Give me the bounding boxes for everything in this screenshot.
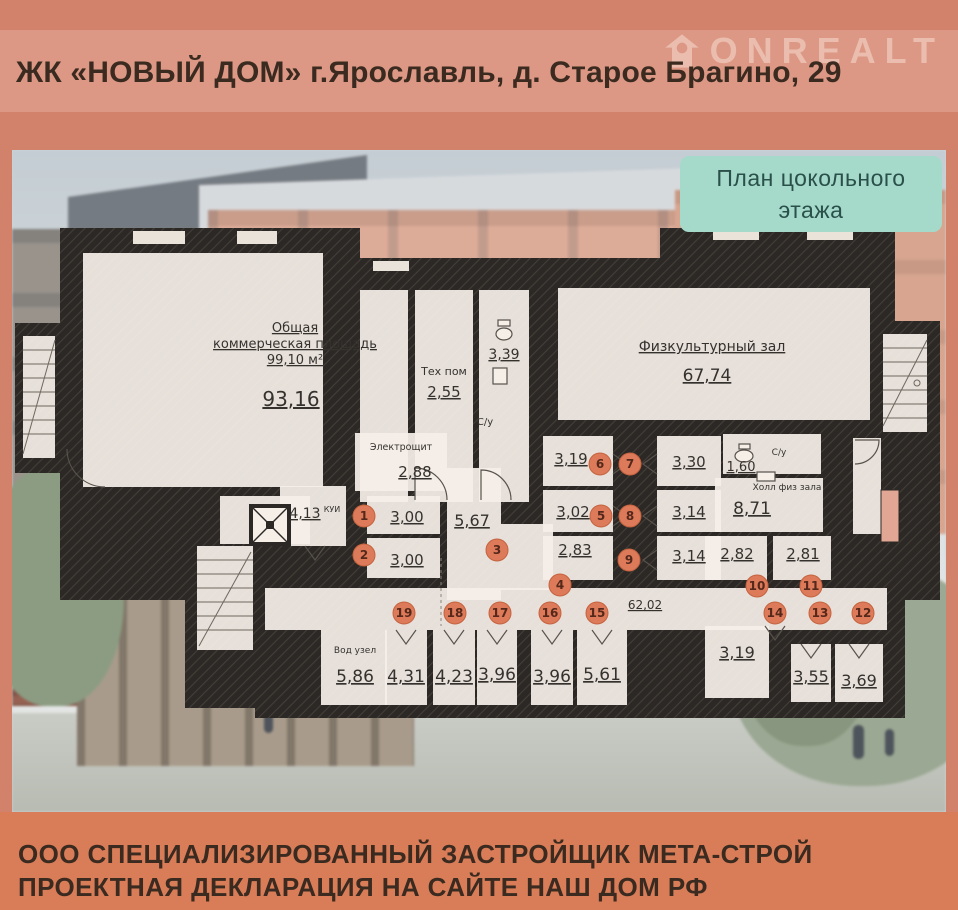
room-11-area: 2,81	[786, 545, 819, 563]
room-19-area: 4,31	[387, 667, 425, 687]
marker-10: 10	[749, 579, 766, 593]
room-14-area	[705, 626, 769, 698]
room-15-area: 5,61	[583, 665, 621, 685]
room-wc-gym-area: 1,60	[727, 460, 756, 475]
right-exit-corridor	[853, 438, 881, 534]
room-gym-name: Физкультурный зал	[639, 339, 786, 355]
page-title: ЖК «НОВЫЙ ДОМ» г.Ярославль, д. Старое Бр…	[16, 56, 952, 90]
room-gym-area: 67,74	[683, 366, 732, 386]
plan-badge: План цокольного этажа	[680, 156, 942, 232]
window-gap	[133, 231, 185, 244]
room-14-area-label: 3,19	[719, 643, 755, 662]
room-electro-name: Электрощит	[370, 442, 433, 453]
room-8-area: 3,14	[672, 503, 705, 521]
room-4-area: 2,83	[558, 541, 591, 559]
marker-5: 5	[597, 509, 605, 523]
plan-badge-line2: этажа	[779, 194, 844, 226]
corridor-total-area: 62,02	[628, 598, 662, 612]
room-kui-name: КУИ	[324, 505, 341, 514]
room-vod-name: Вод узел	[334, 646, 376, 656]
elevator-icon	[251, 506, 289, 544]
marker-1: 1	[360, 509, 368, 523]
marker-13: 13	[812, 606, 829, 620]
room-13-area-label: 3,55	[793, 667, 829, 686]
window-gap	[373, 261, 409, 271]
flyer-canvas: ONREALT ЖК «НОВЫЙ ДОМ» г.Ярославль, д. С…	[0, 0, 958, 910]
room-wc-top-name: С/у	[477, 417, 493, 428]
render-person	[853, 725, 864, 759]
marker-7: 7	[626, 457, 634, 471]
room-17-area: 3,96	[478, 665, 516, 685]
marker-3: 3	[493, 543, 501, 557]
room-gym-hall-area: 8,71	[733, 499, 771, 519]
floor-plan-svg: Общая коммерческая площадь 99,10 м² 93,1…	[15, 228, 940, 720]
marker-6: 6	[596, 457, 604, 471]
room-5-area: 3,02	[556, 503, 589, 521]
marker-4: 4	[556, 578, 564, 592]
marker-18: 18	[447, 606, 464, 620]
room-wc-gym-name: С/у	[772, 448, 787, 458]
footer-band: ООО СПЕЦИАЛИЗИРОВАННЫЙ ЗАСТРОЙЩИК МЕТА-С…	[0, 812, 958, 910]
render-person	[885, 729, 894, 756]
room-wc-top-area: 3,39	[488, 347, 519, 363]
developer-declaration-text: ООО СПЕЦИАЛИЗИРОВАННЫЙ ЗАСТРОЙЩИК МЕТА-С…	[0, 812, 958, 905]
plan-badge-line1: План цокольного	[716, 162, 905, 194]
corridor-5-67	[447, 468, 501, 600]
room-commercial-name: Общая	[272, 321, 318, 336]
room-tech-area: 2,55	[427, 383, 460, 401]
marker-8: 8	[626, 509, 634, 523]
marker-2: 2	[360, 548, 368, 562]
marker-11: 11	[803, 579, 820, 593]
room-1-area: 3,00	[390, 508, 423, 526]
marker-16: 16	[542, 606, 559, 620]
room-12-area-label: 3,69	[841, 671, 877, 690]
marker-15: 15	[589, 606, 606, 620]
marker-14: 14	[767, 606, 784, 620]
room-16-area: 3,96	[533, 667, 571, 687]
room-gym-hall-name: Холл физ зала	[753, 483, 822, 493]
room-2-area: 3,00	[390, 551, 423, 569]
room-commercial-area: 93,16	[262, 387, 319, 411]
marker-19: 19	[396, 606, 413, 620]
marker-9: 9	[625, 553, 633, 567]
room-commercial-name: коммерческая площадь	[213, 337, 377, 352]
main-corridor	[265, 588, 887, 630]
room-9-area: 3,14	[672, 547, 705, 565]
window-strip	[881, 490, 899, 542]
window-gap	[237, 231, 277, 244]
room-7-area: 3,30	[672, 453, 705, 471]
room-commercial-size: 99,10 м²	[267, 353, 323, 368]
room-tech-name: Тех пом	[420, 365, 467, 378]
room-electro-area: 2,88	[398, 463, 431, 481]
marker-12: 12	[855, 606, 872, 620]
room-vod-area: 5,86	[336, 667, 374, 687]
corridor-5-67-area: 5,67	[454, 511, 490, 530]
room-kui-area: 4,13	[289, 506, 320, 522]
room-10-area: 2,82	[720, 545, 753, 563]
room-18-area: 4,23	[435, 667, 473, 687]
room-6-area: 3,19	[554, 450, 587, 468]
marker-17: 17	[492, 606, 509, 620]
room-commercial	[83, 253, 323, 487]
